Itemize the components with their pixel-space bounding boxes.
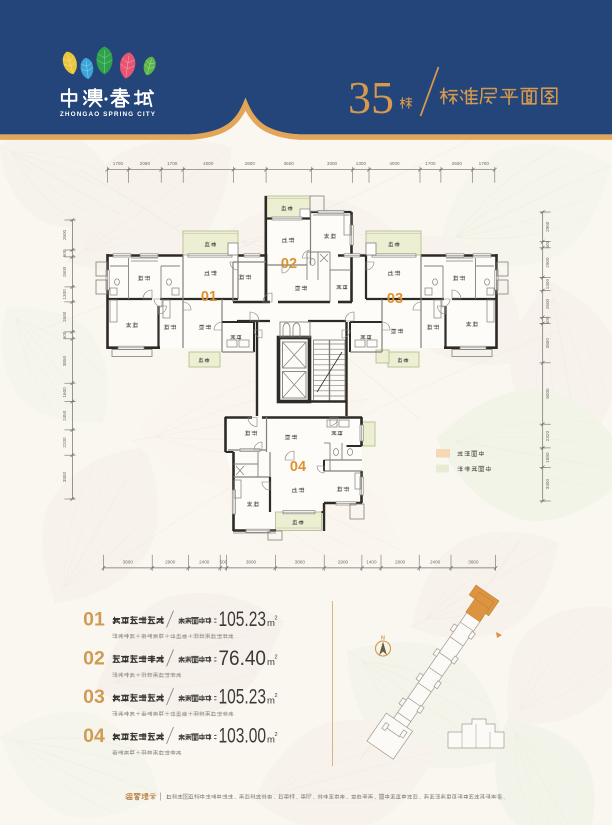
- svg-text:1700: 1700: [479, 161, 490, 166]
- svg-text:02: 02: [83, 647, 105, 669]
- svg-text:3800: 3800: [62, 472, 67, 483]
- svg-text:1300: 1300: [545, 279, 550, 290]
- svg-text:600: 600: [545, 240, 550, 248]
- svg-text:3300: 3300: [327, 161, 338, 166]
- svg-text:N: N: [381, 636, 385, 642]
- svg-text:02: 02: [281, 256, 297, 272]
- svg-text:01: 01: [201, 289, 217, 305]
- svg-text:2600: 2600: [245, 161, 256, 166]
- svg-text:2: 2: [275, 732, 278, 738]
- svg-text:2400: 2400: [199, 559, 210, 564]
- svg-text:2200: 2200: [62, 437, 67, 448]
- svg-text:3300: 3300: [545, 479, 550, 490]
- svg-text:2600: 2600: [62, 266, 67, 277]
- svg-text:2320: 2320: [545, 431, 550, 442]
- svg-text:2450: 2450: [62, 410, 67, 421]
- svg-text:2: 2: [275, 693, 278, 699]
- svg-text:600: 600: [220, 559, 228, 564]
- svg-text:2600: 2600: [62, 311, 67, 322]
- svg-text:1890: 1890: [545, 452, 550, 463]
- svg-text:3850: 3850: [545, 338, 550, 349]
- svg-text:01: 01: [83, 609, 105, 631]
- svg-text:3850: 3850: [62, 355, 67, 366]
- svg-text:6000: 6000: [545, 388, 550, 399]
- svg-text:2080: 2080: [140, 161, 151, 166]
- svg-text:2600: 2600: [545, 298, 550, 309]
- svg-text:103.00: 103.00: [219, 724, 267, 748]
- svg-text:4000: 4000: [203, 161, 214, 166]
- svg-text:105.23: 105.23: [219, 607, 267, 631]
- svg-text:2900: 2900: [338, 559, 349, 564]
- svg-text:76.40: 76.40: [219, 646, 267, 670]
- svg-text:3600: 3600: [468, 559, 479, 564]
- svg-text:03: 03: [83, 686, 105, 708]
- svg-text:2400: 2400: [430, 559, 441, 564]
- svg-text:2900: 2900: [165, 559, 176, 564]
- svg-text:ZHONGAO SPRING CITY: ZHONGAO SPRING CITY: [60, 111, 156, 118]
- svg-text:3800: 3800: [295, 559, 306, 564]
- svg-text:1700: 1700: [113, 161, 124, 166]
- svg-text:3800: 3800: [246, 559, 257, 564]
- svg-text:4000: 4000: [389, 161, 400, 166]
- svg-text:04: 04: [290, 459, 306, 475]
- svg-text:1300: 1300: [62, 289, 67, 300]
- svg-text:1300: 1300: [356, 161, 367, 166]
- svg-text:2: 2: [275, 616, 278, 622]
- svg-text:2600: 2600: [62, 229, 67, 240]
- svg-text:2: 2: [275, 654, 278, 660]
- svg-text:2900: 2900: [545, 257, 550, 268]
- svg-text:3600: 3600: [123, 559, 134, 564]
- svg-text:3600: 3600: [284, 161, 295, 166]
- svg-text:105.23: 105.23: [219, 685, 267, 709]
- svg-text:2600: 2600: [452, 161, 463, 166]
- svg-text:1700: 1700: [167, 161, 178, 166]
- svg-text:03: 03: [387, 291, 403, 307]
- svg-text:1600: 1600: [62, 387, 67, 398]
- svg-text:1400: 1400: [366, 559, 377, 564]
- svg-text:600: 600: [62, 249, 67, 257]
- svg-text:600: 600: [545, 316, 550, 324]
- svg-text:1700: 1700: [425, 161, 436, 166]
- svg-text:35: 35: [348, 72, 394, 123]
- svg-text:2900: 2900: [545, 221, 550, 232]
- svg-text:04: 04: [83, 725, 105, 747]
- svg-text:600: 600: [62, 331, 67, 339]
- svg-text:2800: 2800: [395, 559, 406, 564]
